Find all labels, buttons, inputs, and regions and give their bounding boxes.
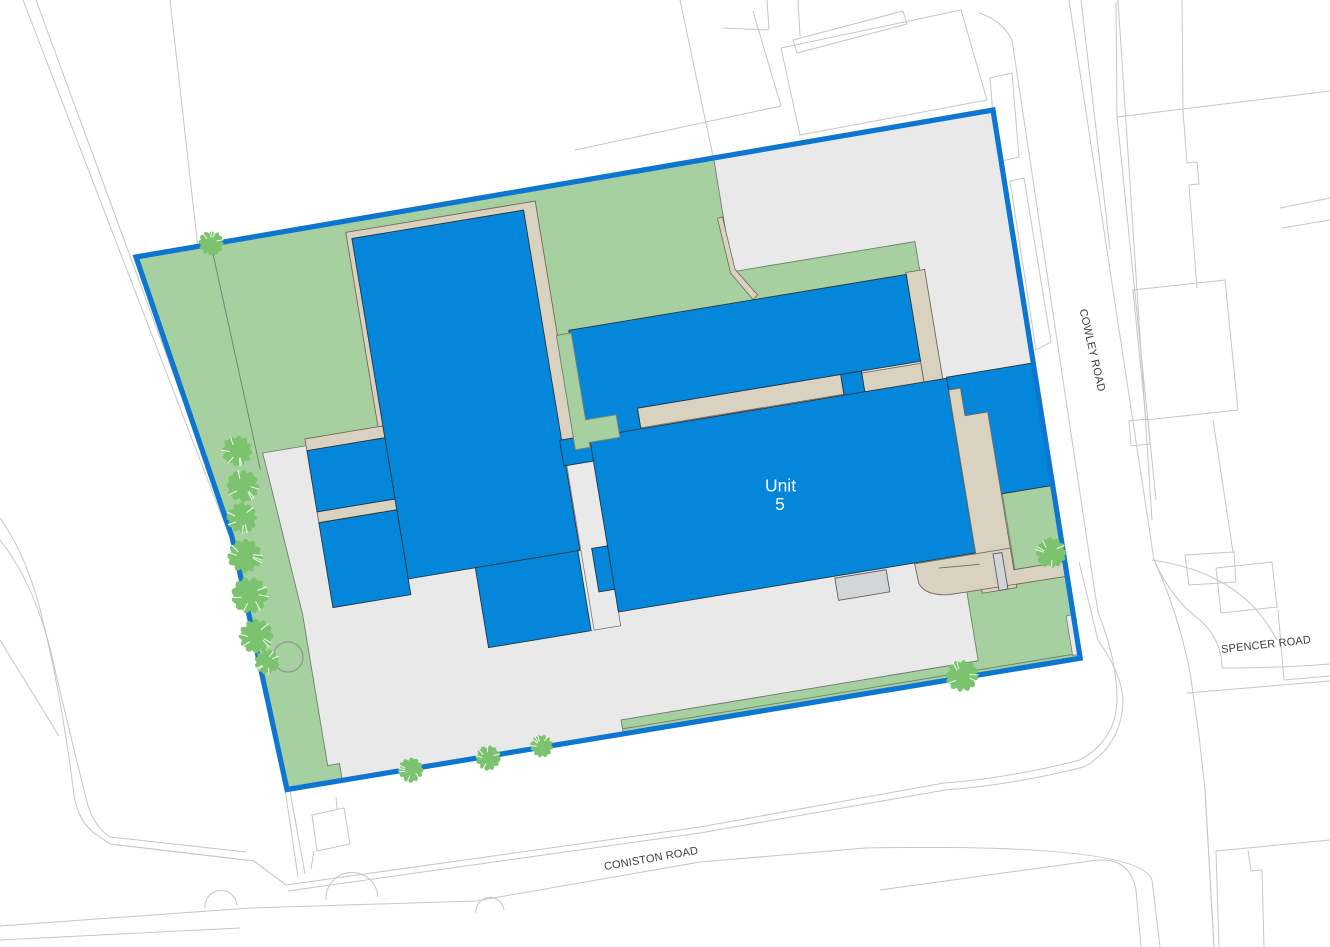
svg-text:Unit: Unit bbox=[765, 476, 796, 496]
svg-text:5: 5 bbox=[775, 494, 785, 514]
